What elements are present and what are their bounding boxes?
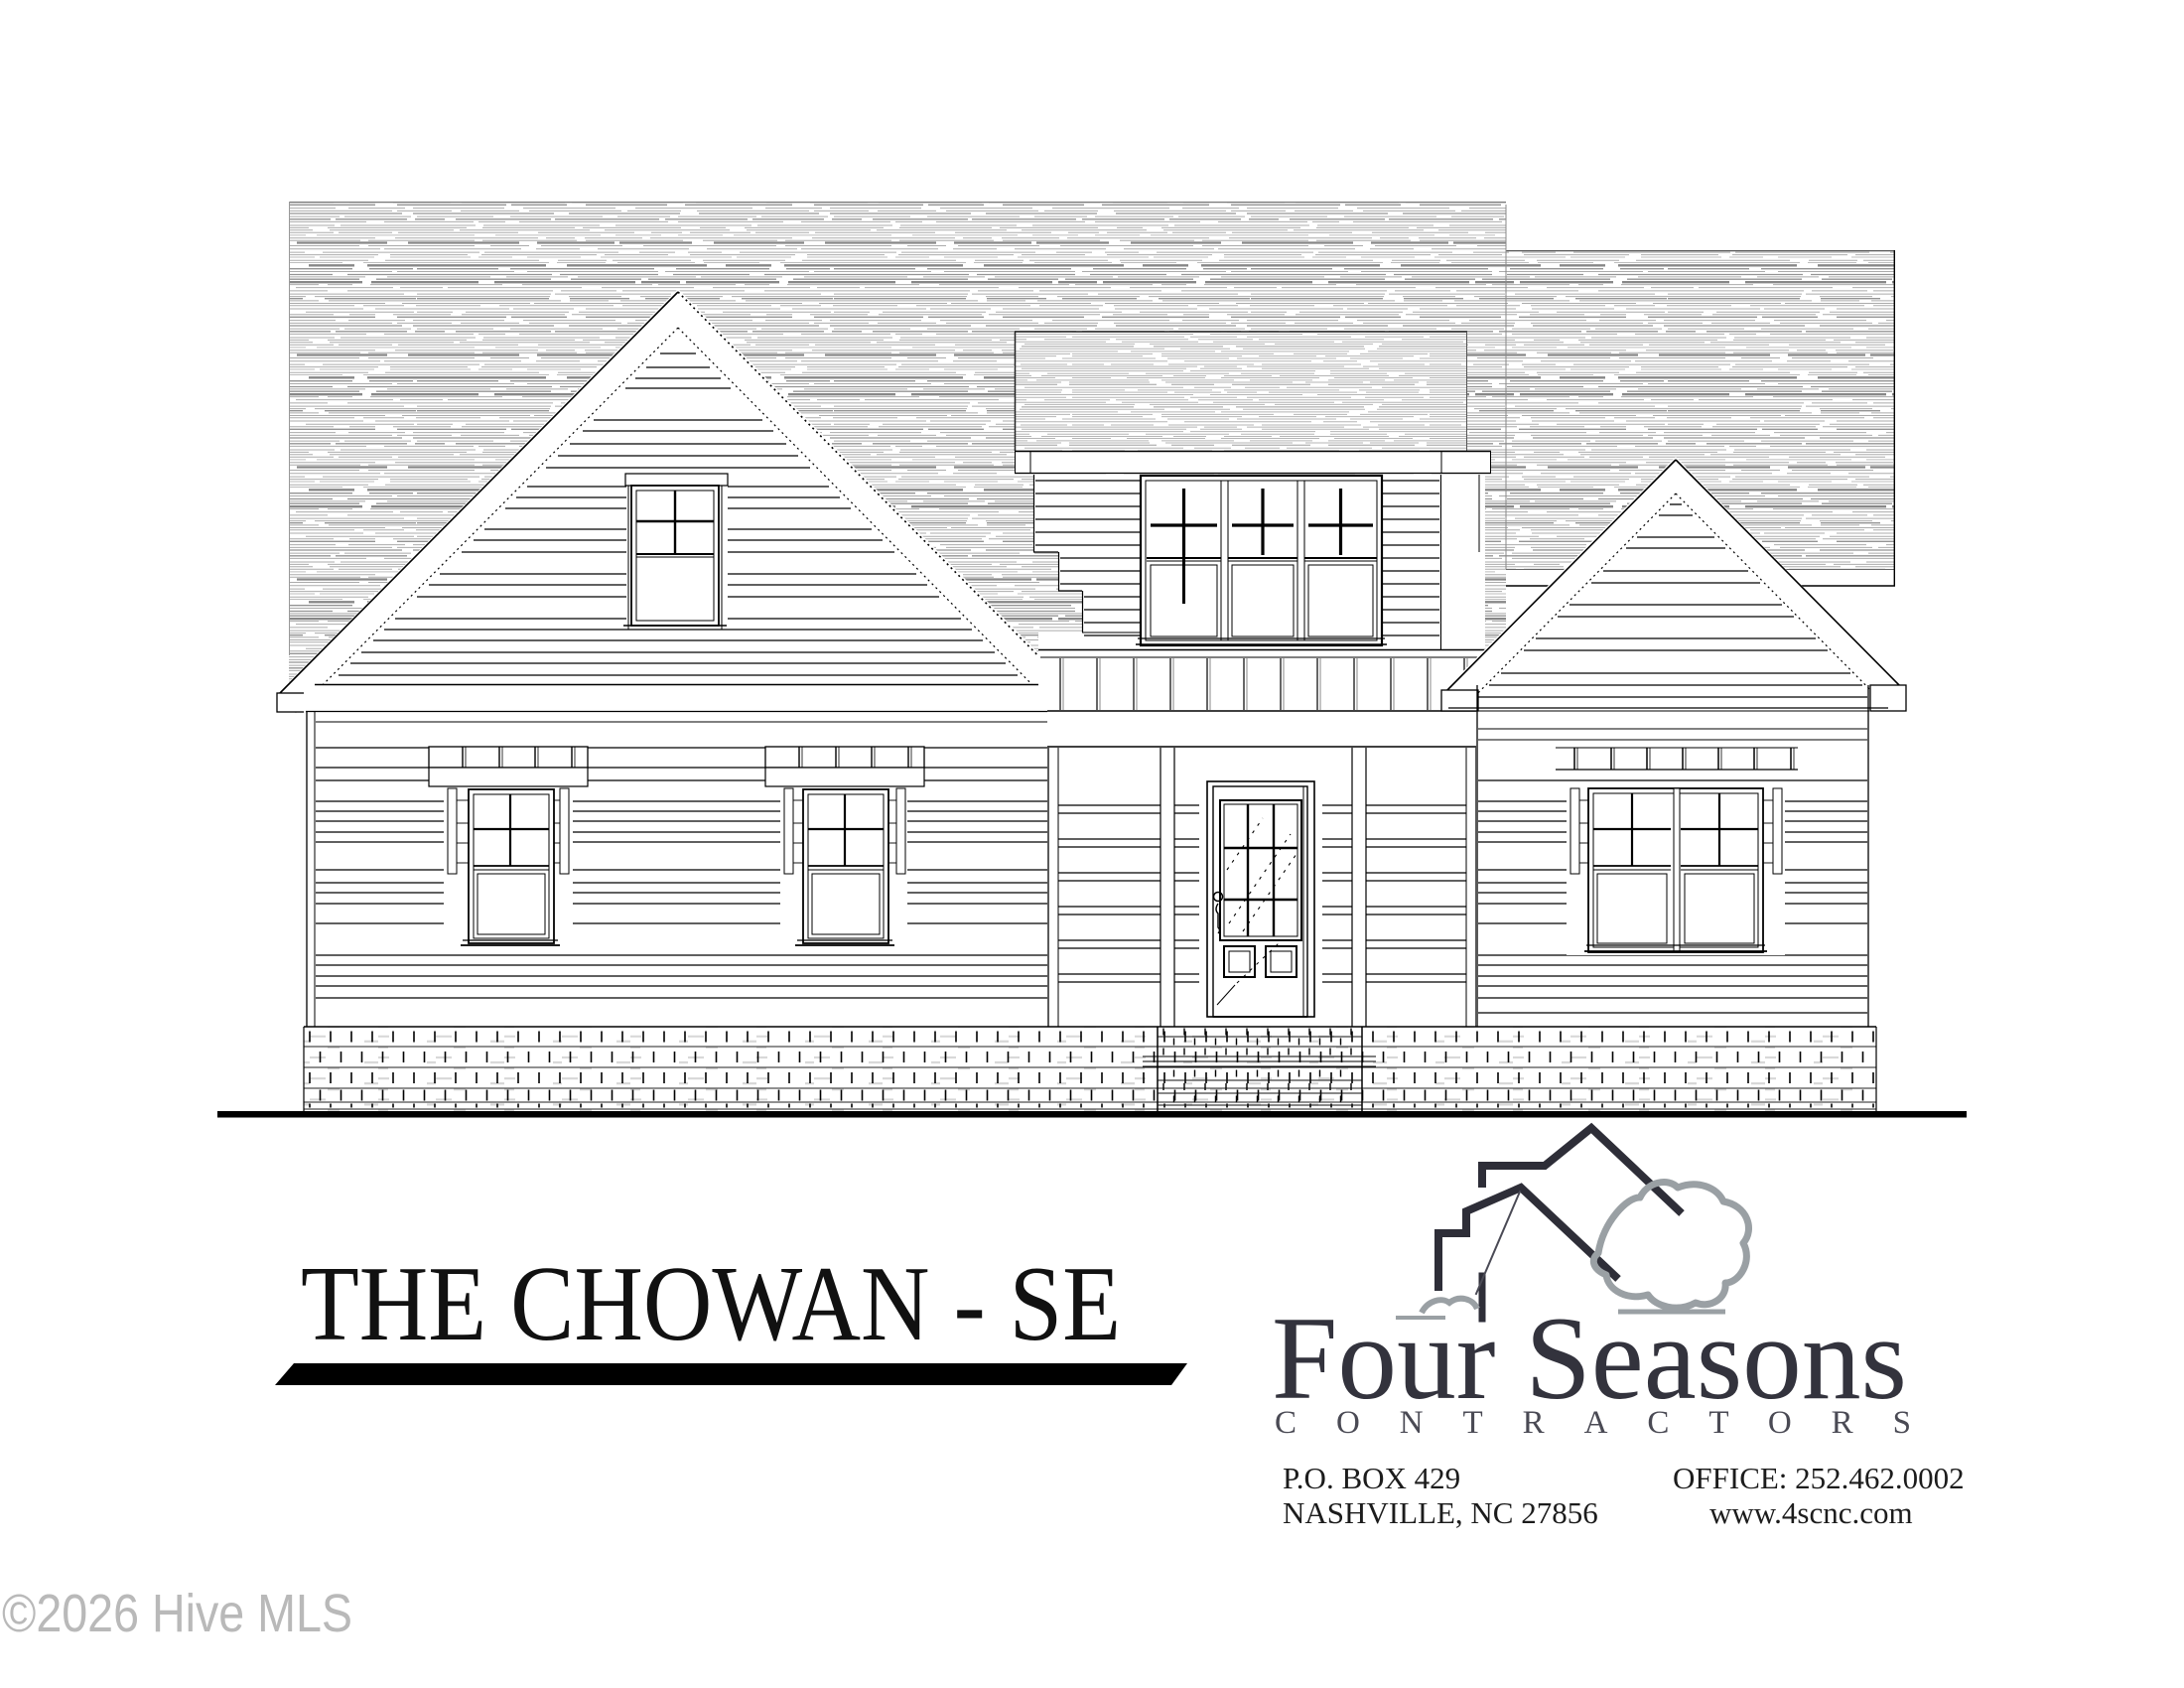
svg-text:www.4scnc.com: www.4scnc.com — [1709, 1495, 1913, 1530]
svg-text:P.O. BOX 429: P.O. BOX 429 — [1283, 1461, 1460, 1495]
svg-text:THE CHOWAN - SE: THE CHOWAN - SE — [301, 1245, 1121, 1363]
svg-text:©2026 Hive MLS: ©2026 Hive MLS — [2, 1584, 352, 1643]
svg-text:NASHVILLE, NC 27856: NASHVILLE, NC 27856 — [1283, 1495, 1598, 1530]
svg-text:OFFICE: 252.462.0002: OFFICE: 252.462.0002 — [1673, 1461, 1965, 1495]
